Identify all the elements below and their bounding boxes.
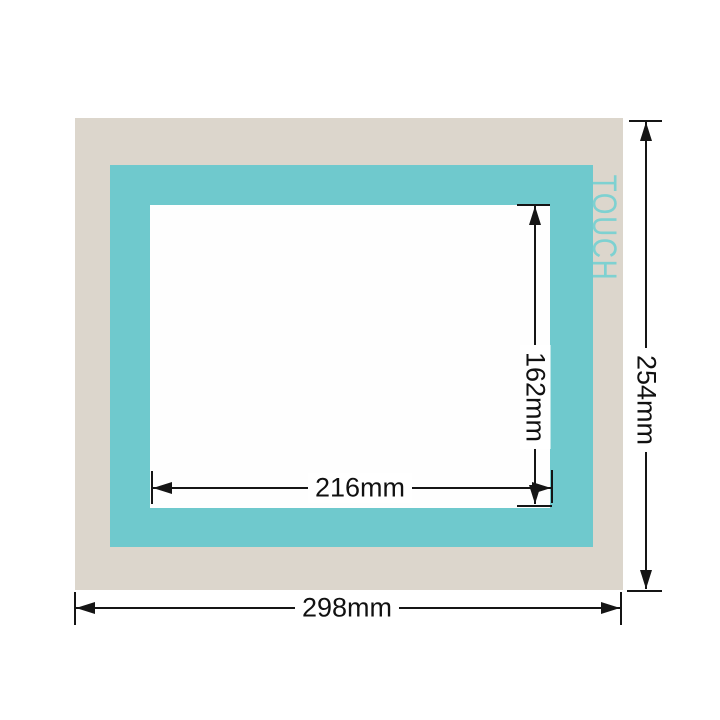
touch-brand-label: TOUCH [587,175,621,282]
arrowhead-up-icon [529,206,541,225]
dimension-tick-right [620,592,622,625]
dimension-outer-width-label: 298mm [295,592,399,623]
display-window [150,205,550,508]
dimension-inner-height-label: 162mm [519,345,550,449]
dimension-tick-bottom [517,505,552,507]
arrowhead-down-icon [529,485,541,504]
dimension-tick-bottom [627,590,662,592]
arrowhead-down-icon [640,570,652,589]
dimension-outer-height-label: 254mm [630,348,661,452]
arrowhead-right-icon [601,602,620,614]
dimension-inner-width-label: 216mm [308,472,412,503]
arrowhead-left-icon [153,482,172,494]
product-dimension-diagram: TOUCH 216mm 162mm 298mm 254mm [0,0,720,720]
arrowhead-left-icon [76,602,95,614]
arrowhead-up-icon [640,122,652,141]
dimension-tick-right [551,470,553,503]
